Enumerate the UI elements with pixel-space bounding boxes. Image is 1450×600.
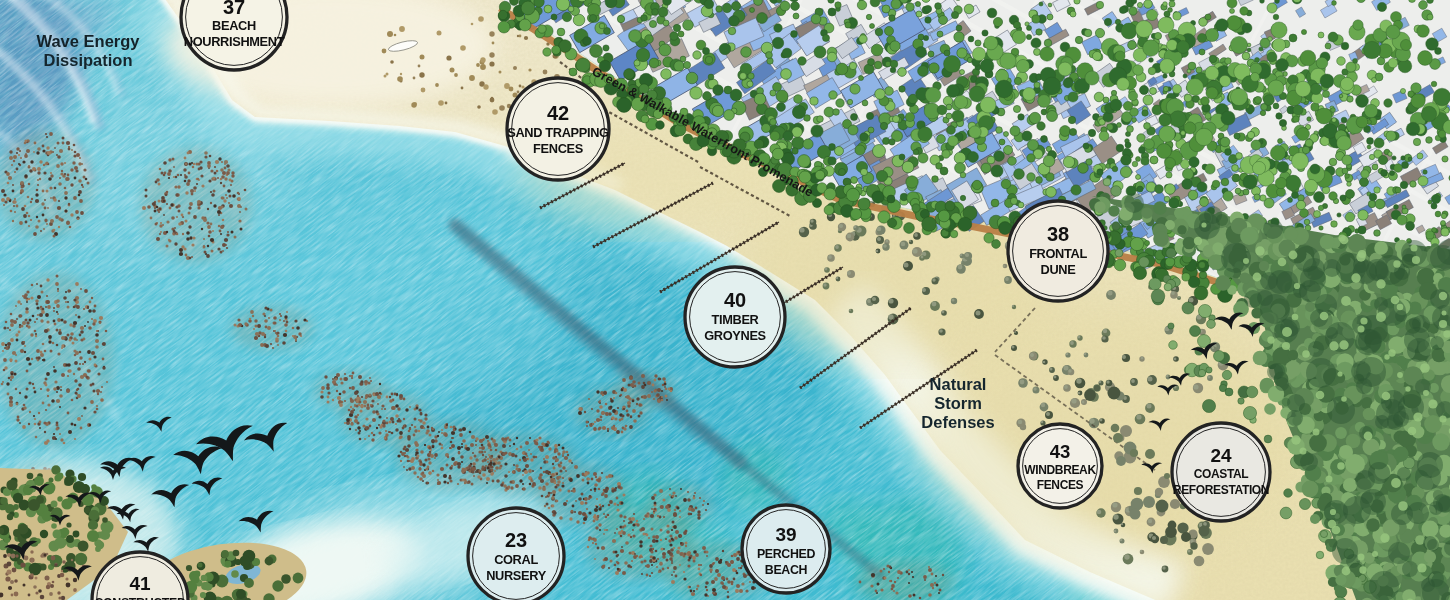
svg-text:GROYNES: GROYNES	[704, 328, 766, 343]
svg-text:43: 43	[1050, 441, 1071, 462]
svg-text:BEACH: BEACH	[765, 563, 808, 577]
svg-text:FENCES: FENCES	[1037, 478, 1084, 492]
svg-text:42: 42	[547, 102, 569, 124]
svg-text:CORAL: CORAL	[494, 552, 538, 567]
svg-text:23: 23	[505, 529, 527, 551]
svg-text:Dissipation: Dissipation	[44, 51, 133, 69]
svg-text:BEACH: BEACH	[212, 18, 256, 33]
svg-text:40: 40	[724, 289, 746, 311]
svg-text:PERCHED: PERCHED	[757, 547, 816, 561]
svg-text:COASTAL: COASTAL	[1194, 467, 1249, 481]
svg-text:FRONTAL: FRONTAL	[1029, 246, 1087, 261]
svg-text:Natural: Natural	[930, 375, 987, 393]
svg-text:Defenses: Defenses	[921, 413, 994, 431]
svg-text:CONSTRUCTED: CONSTRUCTED	[94, 596, 186, 600]
svg-text:SAND TRAPPING: SAND TRAPPING	[507, 125, 609, 140]
svg-text:41: 41	[129, 573, 151, 594]
svg-text:WINDBREAK: WINDBREAK	[1024, 463, 1096, 477]
svg-text:NOURRISHMENT: NOURRISHMENT	[184, 34, 285, 49]
svg-text:37: 37	[223, 0, 245, 18]
svg-text:TIMBER: TIMBER	[712, 312, 759, 327]
svg-text:24: 24	[1210, 445, 1232, 466]
svg-text:Wave Energy: Wave Energy	[36, 32, 140, 50]
svg-text:NURSERY: NURSERY	[486, 568, 546, 583]
svg-text:REFORESTATION: REFORESTATION	[1173, 483, 1269, 497]
svg-text:Storm: Storm	[934, 394, 982, 412]
svg-text:FENCES: FENCES	[533, 141, 584, 156]
svg-text:39: 39	[775, 524, 796, 545]
svg-text:38: 38	[1047, 223, 1069, 245]
svg-text:DUNE: DUNE	[1041, 262, 1077, 277]
